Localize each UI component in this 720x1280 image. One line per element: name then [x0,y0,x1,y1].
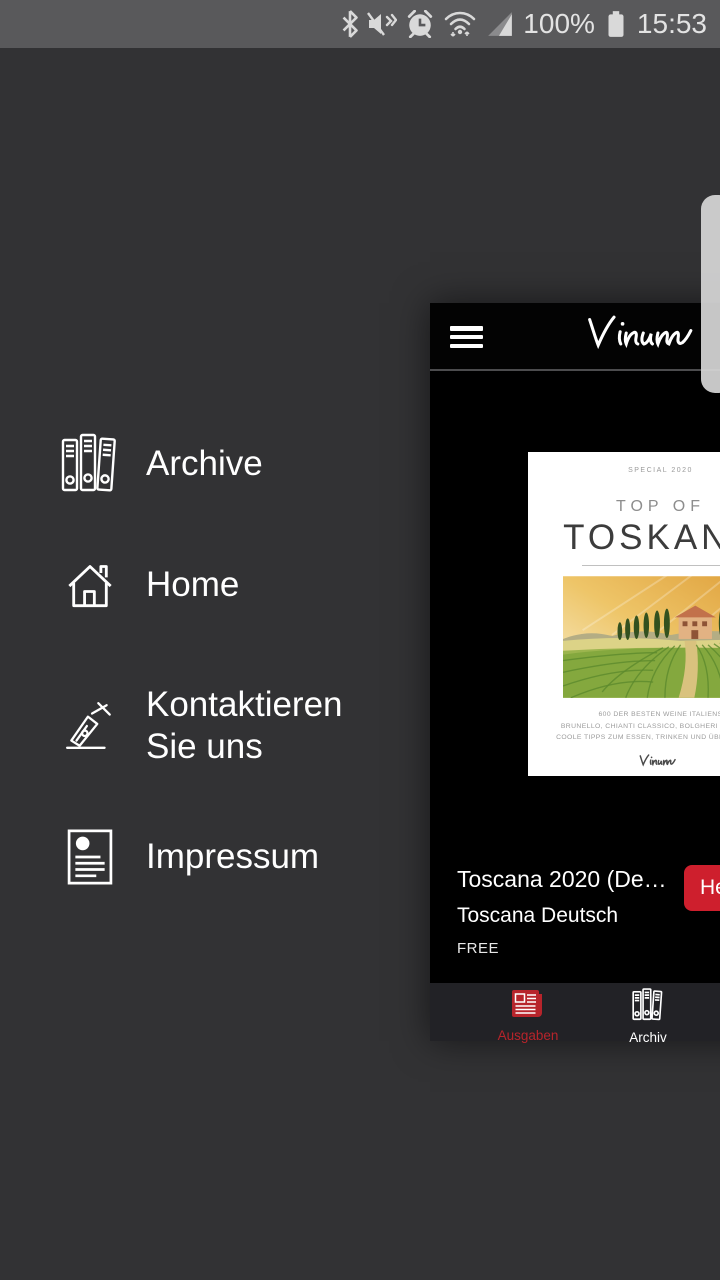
sidebar-item-contact[interactable]: Kontaktieren Sie uns [60,684,361,768]
app-header [430,303,720,370]
cover-subline: 600 DER BESTEN WEINE ITALIENS [528,710,720,721]
sidebar-item-home[interactable]: Home [60,560,239,610]
cover-subline: COOLE TIPPS ZUM ESSEN, TRINKEN UND ÜBERN… [528,733,720,744]
alarm-icon [406,10,434,38]
cover-title: TOSKANA [528,518,720,558]
cover-vinum-logo [528,753,720,773]
cover-landscape-image [563,576,720,698]
cover-rule [582,565,720,566]
pen-icon [60,700,120,752]
clock-text: 15:53 [637,8,707,40]
battery-icon [604,9,628,39]
issue-subtitle: Toscana Deutsch [457,904,618,928]
home-icon [60,560,120,610]
tab-archiv[interactable]: Archiv [598,983,698,1041]
tab-ausgaben[interactable]: Ausgaben [478,983,578,1041]
newspaper-icon [510,988,546,1025]
mute-vibrate-icon [367,10,397,38]
header-divider [430,369,720,371]
cover-tag: SPECIAL 2020 [528,467,720,474]
sidebar-item-label: Home [146,564,239,606]
sidebar-item-impressum[interactable]: Impressum [60,828,319,886]
bottom-tab-bar: Ausgaben Archiv [430,983,720,1041]
battery-percent: 100% [523,8,595,40]
document-icon [60,828,120,886]
sidebar-item-archive[interactable]: Archive [60,432,263,496]
issue-title: Toscana 2020 (De… [457,866,682,893]
vinum-logo [586,312,714,359]
binders-icon [631,988,665,1027]
status-bar: 100% 15:53 [0,0,720,48]
signal-icon [486,10,514,38]
cover-title-top: TOP OF [528,498,720,516]
tab-label: Ausgaben [498,1028,559,1043]
sidebar-item-label: Impressum [146,836,319,878]
issue-price: FREE [457,940,499,957]
cover-subline: BRUNELLO, CHIANTI CLASSICO, BOLGHERI UND… [528,722,720,733]
sidebar-item-label: Archive [146,443,263,485]
magazine-cover[interactable]: SPECIAL 2020 TOP OF TOSKANA [528,452,720,776]
app-screen: SPECIAL 2020 TOP OF TOSKANA [430,303,720,1041]
binders-icon [60,432,120,496]
bluetooth-icon [342,10,358,38]
tab-label: Archiv [629,1030,667,1045]
wifi-icon [443,9,477,39]
edge-panel-handle[interactable] [701,195,720,393]
hamburger-menu-icon[interactable] [450,326,483,348]
download-button[interactable]: Herunterladen [684,865,720,911]
sidebar-item-label: Kontaktieren Sie uns [146,684,361,768]
